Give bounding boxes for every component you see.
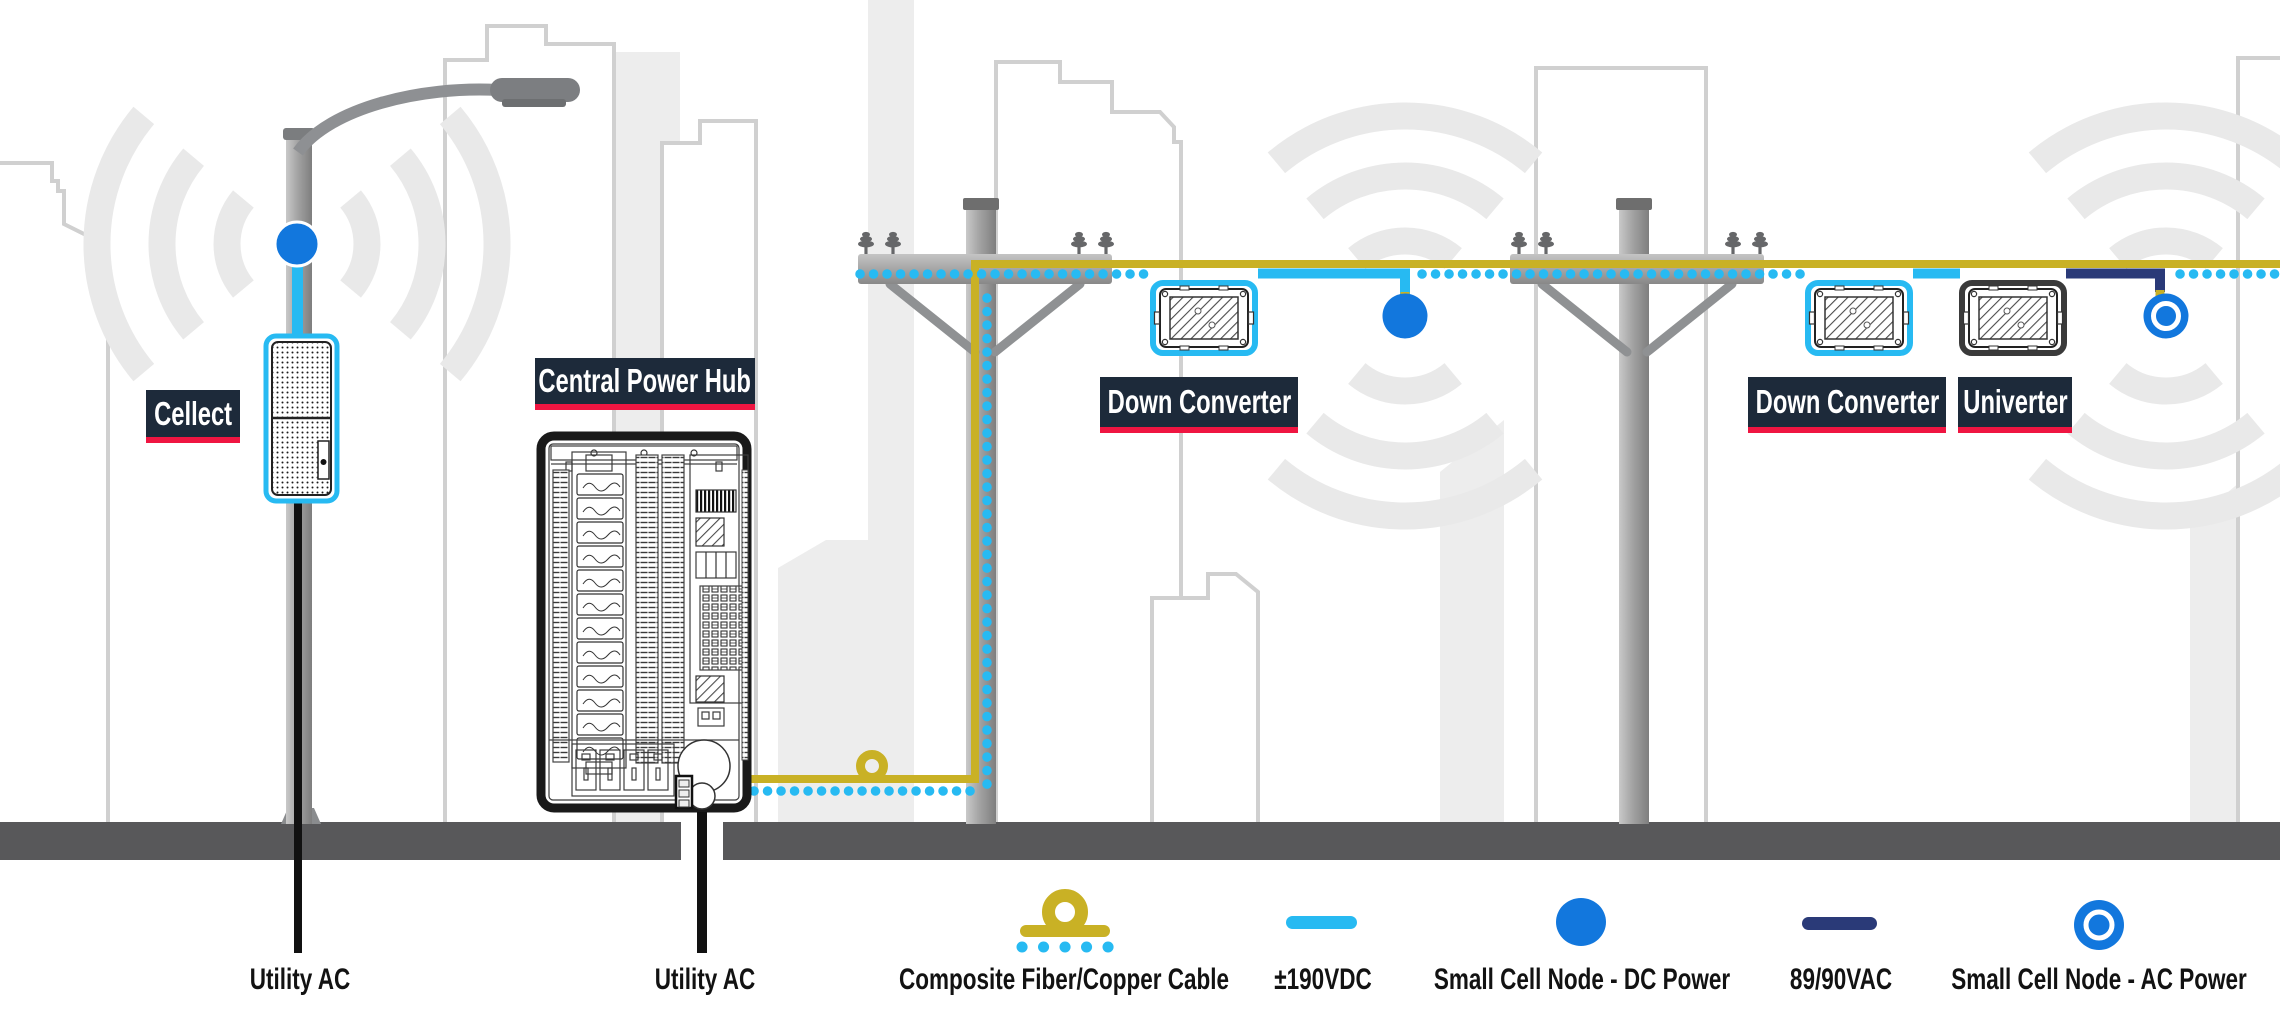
- utility-ac-cable-1: [294, 498, 302, 953]
- dc-190-line-icon: [1286, 916, 1357, 929]
- legend-ac-8990: 89/90VAC: [1773, 963, 1909, 997]
- legend-dc-node: Small Cell Node - DC Power: [1384, 963, 1779, 997]
- cellect-device: [266, 336, 337, 501]
- legend-ac-node: Small Cell Node - AC Power: [1902, 963, 2280, 997]
- down-converter-1-label-text: Down Converter: [1107, 383, 1291, 421]
- legend-utility-ac-2: Utility AC: [638, 963, 772, 997]
- small-cell-node-dc: [1383, 294, 1428, 339]
- legend-icons: [1020, 896, 2124, 951]
- street-light-lamp-head: [490, 78, 580, 102]
- central-power-hub-cabinet: [541, 436, 748, 809]
- central-power-hub-label: Central Power Hub: [535, 358, 755, 410]
- composite-cable-icon: [1020, 896, 1110, 948]
- cellect-assembly: [266, 222, 337, 501]
- central-power-hub-label-text: Central Power Hub: [539, 362, 752, 400]
- down-converter-2-label: Down Converter: [1748, 377, 1946, 433]
- legend-utility-ac-1: Utility AC: [233, 963, 367, 997]
- cellect-label-text: Cellect: [154, 395, 232, 433]
- dc-190-segment-1: [1258, 274, 1405, 297]
- ac-8990-segment: [2066, 274, 2160, 293]
- cellect-label: Cellect: [146, 390, 240, 443]
- univerter-label: Univerter: [1958, 377, 2072, 433]
- down-converter-1-device: [1153, 283, 1255, 353]
- down-converter-1-label: Down Converter: [1100, 377, 1298, 433]
- univerter-label-text: Univerter: [1963, 383, 2067, 421]
- legend-dc-190: ±190VDC: [1258, 963, 1388, 997]
- small-cell-node-ac: [2144, 294, 2189, 339]
- univerter-device: [1962, 283, 2064, 353]
- down-converter-2-label-text: Down Converter: [1755, 383, 1939, 421]
- pole-small-cell-node: [275, 222, 319, 266]
- street-ground: [0, 822, 2280, 860]
- ac-8990-line-icon: [1802, 917, 1877, 930]
- utility-ac-cable-2: [697, 812, 707, 953]
- ac-node-icon: [2074, 900, 2124, 950]
- down-converter-2-device: [1808, 283, 1910, 353]
- legend-composite-cable: Composite Fiber/Copper Cable: [844, 963, 1284, 997]
- diagram-stage: Cellect Central Power Hub Down Converter…: [0, 0, 2280, 1032]
- dc-node-icon: [1556, 898, 1606, 946]
- diagram-graphics: [0, 0, 2280, 1032]
